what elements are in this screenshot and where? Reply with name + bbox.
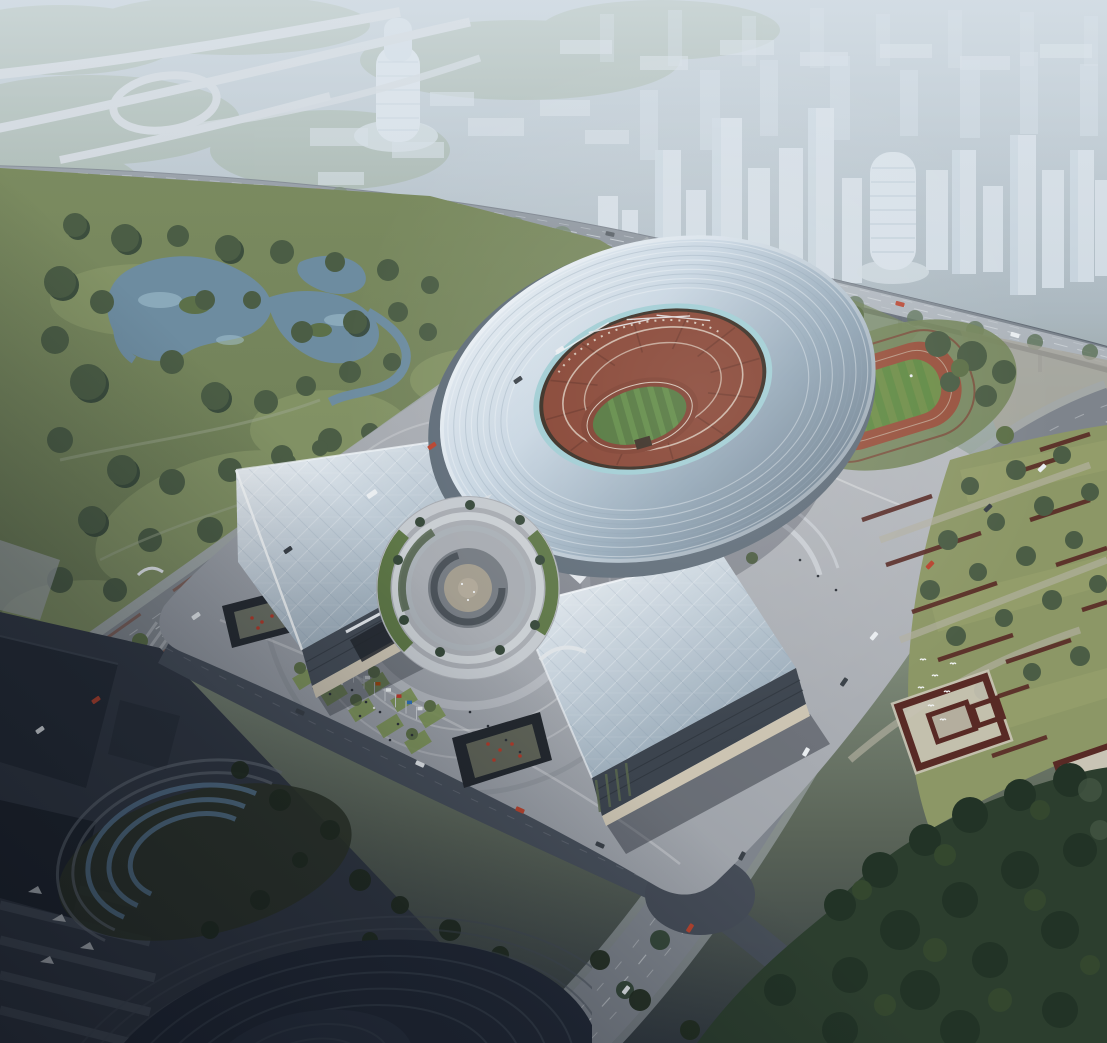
scene-canvas xyxy=(0,0,1107,1043)
evening-shadow-overlay xyxy=(0,0,1107,1043)
architectural-rendering xyxy=(0,0,1107,1043)
